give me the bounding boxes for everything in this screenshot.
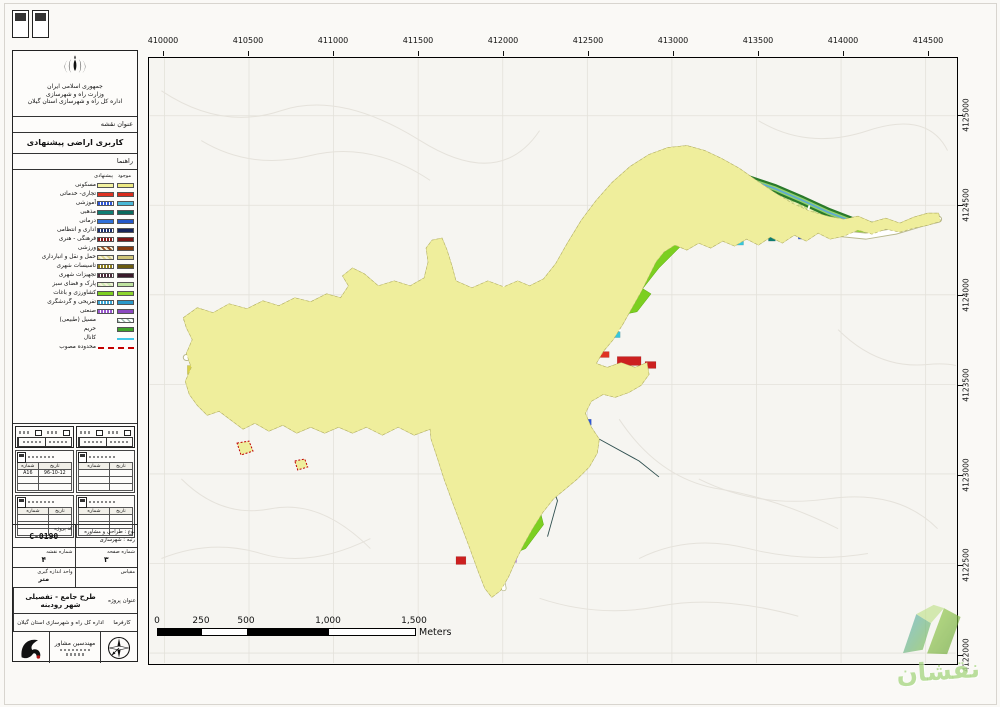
checkbox-icon: [124, 430, 131, 436]
x-axis-label: 411500: [403, 36, 434, 45]
legend-row: محدوده مصوب: [16, 343, 134, 352]
legend-row: مسیل (طبیعی): [16, 316, 134, 325]
legend-label: تفریحی و گردشگری: [16, 298, 96, 307]
sheet-number-value: ۴: [15, 555, 73, 564]
consultant-label: مهندسین مشاور: [55, 640, 95, 647]
scale-bar-label: 500: [237, 616, 254, 626]
consultant-logo: [13, 632, 49, 663]
legend-column-headers: پیشنهادی موجود: [16, 172, 134, 181]
legend-row: تجاری- خدماتی: [16, 190, 134, 199]
boundary-islands: [237, 441, 308, 470]
client-label: کارفرما: [107, 614, 137, 631]
scale-bar-label: 1,000: [315, 616, 341, 626]
legend-label: فرهنگی - هنری: [16, 235, 96, 244]
project-code-row: نوع : طراحی و مشاوره رتبه : شهرسازی کد پ…: [13, 524, 137, 547]
legend-label: مسکونی: [16, 181, 96, 190]
sheet-number-row: شماره صفحه ۳ شماره نقشه ۴: [13, 547, 137, 567]
x-axis-label: 410000: [148, 36, 179, 45]
legend-row: پارک و فضای سبز: [16, 280, 134, 289]
legend-col-existing: موجود: [116, 173, 133, 179]
iran-emblem-icon: [60, 53, 90, 79]
consultant-logo-icon: [17, 634, 45, 662]
scale-bar-label: 1,500: [401, 616, 427, 626]
corner-stamp-box: [12, 10, 29, 38]
checkbox-box: [76, 426, 135, 448]
project-title-label: عنوان پروژه: [107, 588, 137, 613]
checkbox-icon: [63, 430, 70, 436]
page-number-value: ۳: [78, 555, 136, 564]
x-axis-label: 412000: [488, 36, 519, 45]
x-axis-label: 411000: [318, 36, 349, 45]
legend-row: تجهیزات شهری: [16, 271, 134, 280]
x-axis-label: 413500: [743, 36, 774, 45]
scale-bar-label: 0: [154, 616, 160, 626]
legend-row: اداری و انتظامی: [16, 226, 134, 235]
legend-label: مذهبی: [16, 208, 96, 217]
page-number-cell: شماره صفحه ۳: [76, 548, 138, 567]
unit-value: متر: [15, 575, 73, 583]
stacked-squares-icon: [78, 497, 87, 508]
project-title-value: طرح جامع - تفصیلی شهر رودبنه: [13, 588, 107, 613]
revision-section: شمارهتاریخA1696-10-12شمارهتاریخشمارهتاری…: [13, 423, 137, 524]
scale-bar-label: 250: [192, 616, 209, 626]
client-value: اداره کل راه و شهرسازی استان گیلان: [17, 620, 104, 626]
legend-row: مسکونی: [16, 181, 134, 190]
legend-rows: مسکونیتجاری- خدماتیآموزشیمذهبیدرمانیادار…: [16, 181, 134, 352]
client-value-cell: اداره کل راه و شهرسازی استان گیلان: [13, 614, 107, 631]
map-title-label: عنوان نقشه: [13, 116, 137, 132]
map-sheet: جمهوری اسلامی ایران وزارت راه و شهرسازی …: [0, 0, 1000, 707]
legend-row: کانال: [16, 334, 134, 343]
type-line-2: رتبه : شهرسازی: [78, 536, 136, 544]
scale-bar-segments: [157, 628, 416, 636]
x-axis-label: 410500: [233, 36, 264, 45]
legend-label: صنعتی: [16, 307, 96, 316]
legend-heading: راهنما: [13, 153, 137, 169]
legend-label: محدوده مصوب: [16, 343, 96, 352]
x-axis-label: 414500: [913, 36, 944, 45]
checkbox-icon: [96, 430, 103, 436]
legend: پیشنهادی موجود مسکونیتجاری- خدماتیآموزشی…: [13, 169, 137, 423]
legend-row: مذهبی: [16, 208, 134, 217]
project-code-value: C-0190: [15, 532, 73, 541]
north-compass: [101, 632, 137, 663]
corner-stamp: [12, 10, 49, 38]
legend-row: آموزشی: [16, 199, 134, 208]
legend-label: تجاری- خدماتی: [16, 190, 96, 199]
stacked-squares-icon: [17, 452, 26, 463]
legend-label: درمانی: [16, 217, 96, 226]
client-row: کارفرما اداره کل راه و شهرسازی استان گیل…: [13, 613, 137, 631]
legend-row: حریم: [16, 325, 134, 334]
checkbox-box: [15, 426, 74, 448]
scale-cell: مقیاس: [76, 568, 138, 587]
legend-label: حمل و نقل و انبارداری: [16, 253, 96, 262]
x-axis-label: 414000: [828, 36, 859, 45]
checkbox-icon: [35, 430, 42, 436]
logos-row: مهندسین مشاور: [13, 631, 137, 663]
revision-block: شمارهتاریخA1696-10-12: [15, 450, 74, 493]
legend-label: تاسیسات شهری: [16, 262, 96, 271]
x-axis-label: 412500: [573, 36, 604, 45]
legend-row: حمل و نقل و انبارداری: [16, 253, 134, 262]
legend-row: فرهنگی - هنری: [16, 235, 134, 244]
stacked-squares-icon: [78, 452, 87, 463]
scale-bar-unit: Meters: [419, 627, 451, 638]
legend-label: آموزشی: [16, 199, 96, 208]
checkbox-header-row: [15, 426, 135, 448]
revision-block: شمارهتاریخ: [76, 450, 135, 493]
header-block: جمهوری اسلامی ایران وزارت راه و شهرسازی …: [13, 51, 137, 116]
legend-label: کانال: [16, 334, 96, 343]
map-canvas: [149, 58, 956, 663]
legend-row: تاسیسات شهری: [16, 262, 134, 271]
stacked-squares-icon: [17, 497, 26, 508]
scale-label: مقیاس: [78, 569, 136, 575]
legend-row: ورزشی: [16, 244, 134, 253]
legend-label: اداری و انتظامی: [16, 226, 96, 235]
map-frame: [148, 57, 958, 665]
legend-label: تجهیزات شهری: [16, 271, 96, 280]
x-axis-label: 413000: [658, 36, 689, 45]
legend-label: مسیل (طبیعی): [16, 316, 96, 325]
project-code-cell: کد پروژه C-0190: [13, 525, 76, 547]
org-line-2: وزارت راه و شهرسازی: [13, 91, 137, 99]
legend-col-proposed: پیشنهادی: [96, 173, 113, 179]
scale-bar: 02505001,0001,500 Meters: [157, 616, 457, 640]
org-line-3: اداره کل راه و شهرسازی استان گیلان: [13, 98, 137, 106]
compass-icon: [105, 634, 133, 662]
legend-row: تفریحی و گردشگری: [16, 298, 134, 307]
project-title-line-2: شهر رودبنه: [41, 601, 81, 609]
legend-row: صنعتی: [16, 307, 134, 316]
legend-label: ورزشی: [16, 244, 96, 253]
consultant-cell: مهندسین مشاور: [49, 632, 101, 663]
legend-label: کشاورزی و باغات: [16, 289, 96, 298]
unit-scale-row: مقیاس واحد اندازه گیری متر: [13, 567, 137, 587]
corner-stamp-box: [32, 10, 49, 38]
legend-label: پارک و فضای سبز: [16, 280, 96, 289]
sheet-number-cell: شماره نقشه ۴: [13, 548, 76, 567]
type-line-1: نوع : طراحی و مشاوره: [78, 528, 136, 536]
project-title-row: عنوان پروژه طرح جامع - تفصیلی شهر رودبنه: [13, 587, 137, 613]
project-type-cell: نوع : طراحی و مشاوره رتبه : شهرسازی: [76, 525, 138, 547]
org-line-1: جمهوری اسلامی ایران: [13, 83, 137, 91]
unit-cell: واحد اندازه گیری متر: [13, 568, 76, 587]
title-panel: جمهوری اسلامی ایران وزارت راه و شهرسازی …: [12, 50, 138, 662]
map-title: کاربری اراضی پیشنهادی: [13, 132, 137, 153]
legend-label: حریم: [16, 325, 96, 334]
legend-row: درمانی: [16, 217, 134, 226]
legend-row: کشاورزی و باغات: [16, 289, 134, 298]
project-title-line-1: طرح جامع - تفصیلی: [25, 593, 95, 601]
